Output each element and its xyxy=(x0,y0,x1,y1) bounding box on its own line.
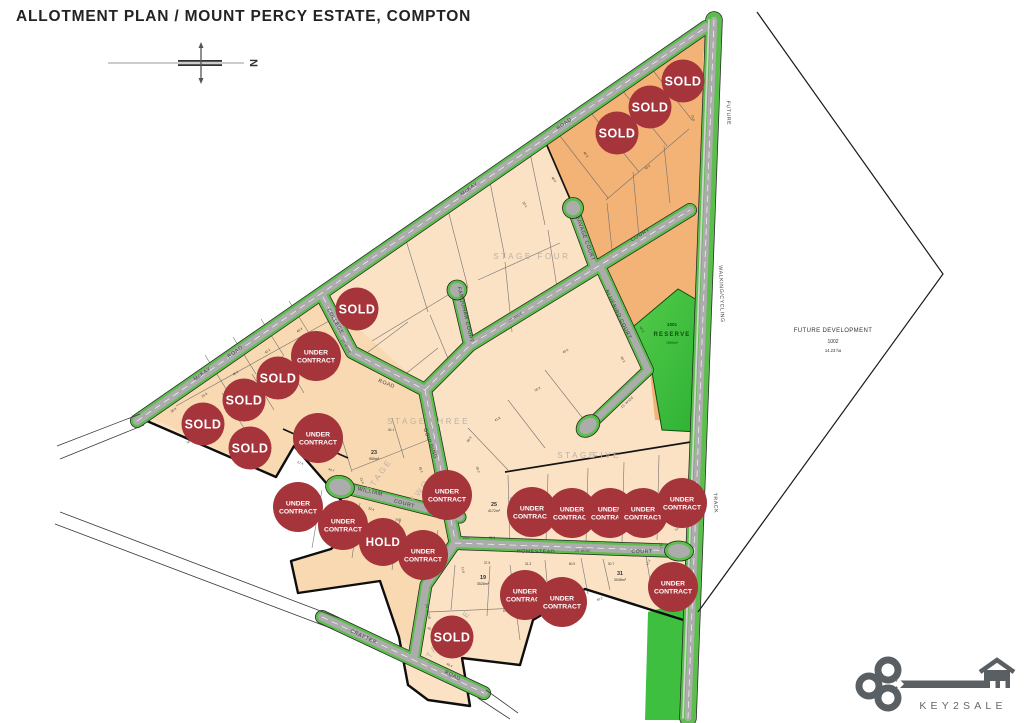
badge-text: SOLD xyxy=(339,303,376,317)
badge-text: UNDER xyxy=(661,581,685,588)
reserve-number: 1001 xyxy=(667,322,678,327)
badge-text: CONTRACT xyxy=(404,557,443,564)
road-label: HOMESTEAD xyxy=(517,549,555,556)
status-badge-sold: SOLD xyxy=(229,427,272,470)
badge-text: SOLD xyxy=(599,127,636,141)
badge-text: SOLD xyxy=(232,442,269,456)
reserve-area-label: 7890m² xyxy=(666,341,679,345)
logo-text: KEY2SALE xyxy=(919,700,1006,712)
badge-text: SOLD xyxy=(434,631,471,645)
allotment-map: N KEY2SALE McKAYROADMcKAYROADCOLLEGE20 W… xyxy=(0,0,1024,723)
badge-text: HOLD xyxy=(366,537,401,549)
lot-area: 4172m² xyxy=(488,509,501,513)
badge-text: CONTRACT xyxy=(279,509,318,516)
status-badge-uc: UNDERCONTRACT xyxy=(293,413,343,463)
badge-text: UNDER xyxy=(560,507,584,514)
badge-text: SOLD xyxy=(185,418,222,432)
badge-text: UNDER xyxy=(435,489,459,496)
badge-text: UNDER xyxy=(286,501,310,508)
status-badge-sold: SOLD xyxy=(336,288,379,331)
badge-text: SOLD xyxy=(226,394,263,408)
stage-label: FIVE xyxy=(593,451,621,460)
badge-text: UNDER xyxy=(631,507,655,514)
lot-area: 3045m² xyxy=(614,578,627,582)
badge-text: SOLD xyxy=(632,101,669,115)
compass: N xyxy=(108,42,259,84)
stage-label: STAGE xyxy=(387,417,427,426)
key-icon xyxy=(859,660,898,708)
road-label: FUTURE xyxy=(725,101,732,126)
badge-text: UNDER xyxy=(670,497,694,504)
badge-text: CONTRACT xyxy=(663,505,702,512)
badge-text: CONTRACT xyxy=(654,589,693,596)
road-label: 20 WIDE xyxy=(575,549,592,553)
badge-text: UNDER xyxy=(550,596,574,603)
key2sale-logo: KEY2SALE xyxy=(859,660,1014,712)
lot-number: 23 xyxy=(371,450,377,456)
badge-text: CONTRACT xyxy=(624,515,663,522)
status-badge-sold: SOLD xyxy=(182,403,225,446)
badge-text: CONTRACT xyxy=(543,604,582,611)
badge-text: CONTRACT xyxy=(513,514,552,521)
future-development-area: 14.23 ha xyxy=(825,348,842,353)
lot-dimension: 30.0 xyxy=(489,536,495,540)
road-label: COURT xyxy=(631,549,653,555)
badge-text: UNDER xyxy=(306,432,330,439)
house-icon xyxy=(980,660,1014,689)
road-label: TRACK xyxy=(711,493,718,514)
status-badge-uc: UNDERCONTRACT xyxy=(398,530,448,580)
status-badge-uc: UNDERCONTRACT xyxy=(657,478,707,528)
badge-text: UNDER xyxy=(331,519,355,526)
badge-text: UNDER xyxy=(513,589,537,596)
lot-dimension: 40.2 xyxy=(596,596,603,602)
status-badge-sold: SOLD xyxy=(223,379,266,422)
status-badge-uc: UNDERCONTRACT xyxy=(648,562,698,612)
lot-area: 3528m² xyxy=(477,582,490,586)
lot-number: 25 xyxy=(491,502,497,508)
future-development-lot: 1002 xyxy=(827,339,838,345)
badge-text: CONTRACT xyxy=(297,358,336,365)
north-label: N xyxy=(247,59,259,67)
status-badge-uc: UNDERCONTRACT xyxy=(273,482,323,532)
road-label: WALKING/CYCLING xyxy=(717,265,725,322)
lot-dimension: 30.7 xyxy=(608,562,614,566)
badge-text: UNDER xyxy=(411,549,435,556)
stage-label: STAGE xyxy=(557,451,597,460)
lot-dimension: 27.4 xyxy=(297,460,304,466)
badge-text: SOLD xyxy=(260,372,297,386)
lot-number: 19 xyxy=(480,575,486,581)
lot-area: 900m² xyxy=(369,457,380,461)
reserve-name: RESERVE xyxy=(654,332,691,338)
future-boundary-line xyxy=(698,12,943,612)
status-badge-uc: UNDERCONTRACT xyxy=(537,577,587,627)
allotment-plan-page: ALLOTMENT PLAN / MOUNT PERCY ESTATE, COM… xyxy=(0,0,1024,723)
stage-label: FOUR xyxy=(537,252,570,261)
stage-label: STAGE xyxy=(493,252,533,261)
lot-dimension: 31.3 xyxy=(525,562,531,566)
status-badge-sold: SOLD xyxy=(596,112,639,155)
stage-label: THREE xyxy=(430,417,470,426)
lot-dimension: 60.9 xyxy=(569,562,575,566)
badge-text: UNDER xyxy=(520,506,544,513)
badge-text: CONTRACT xyxy=(324,527,363,534)
status-badge-uc: UNDERCONTRACT xyxy=(422,470,472,520)
status-badge-sold: SOLD xyxy=(431,616,474,659)
badge-text: UNDER xyxy=(304,350,328,357)
lot-dimension: 40.1 xyxy=(388,428,394,432)
badge-text: CONTRACT xyxy=(299,440,338,447)
badge-text: SOLD xyxy=(665,75,702,89)
badge-text: CONTRACT xyxy=(428,497,467,504)
future-development-label: FUTURE DEVELOPMENT xyxy=(794,328,873,334)
lot-number: 31 xyxy=(617,571,623,577)
lot-dimension: 16.5 xyxy=(463,536,469,540)
lot-dimension: 37.5 xyxy=(484,561,490,565)
